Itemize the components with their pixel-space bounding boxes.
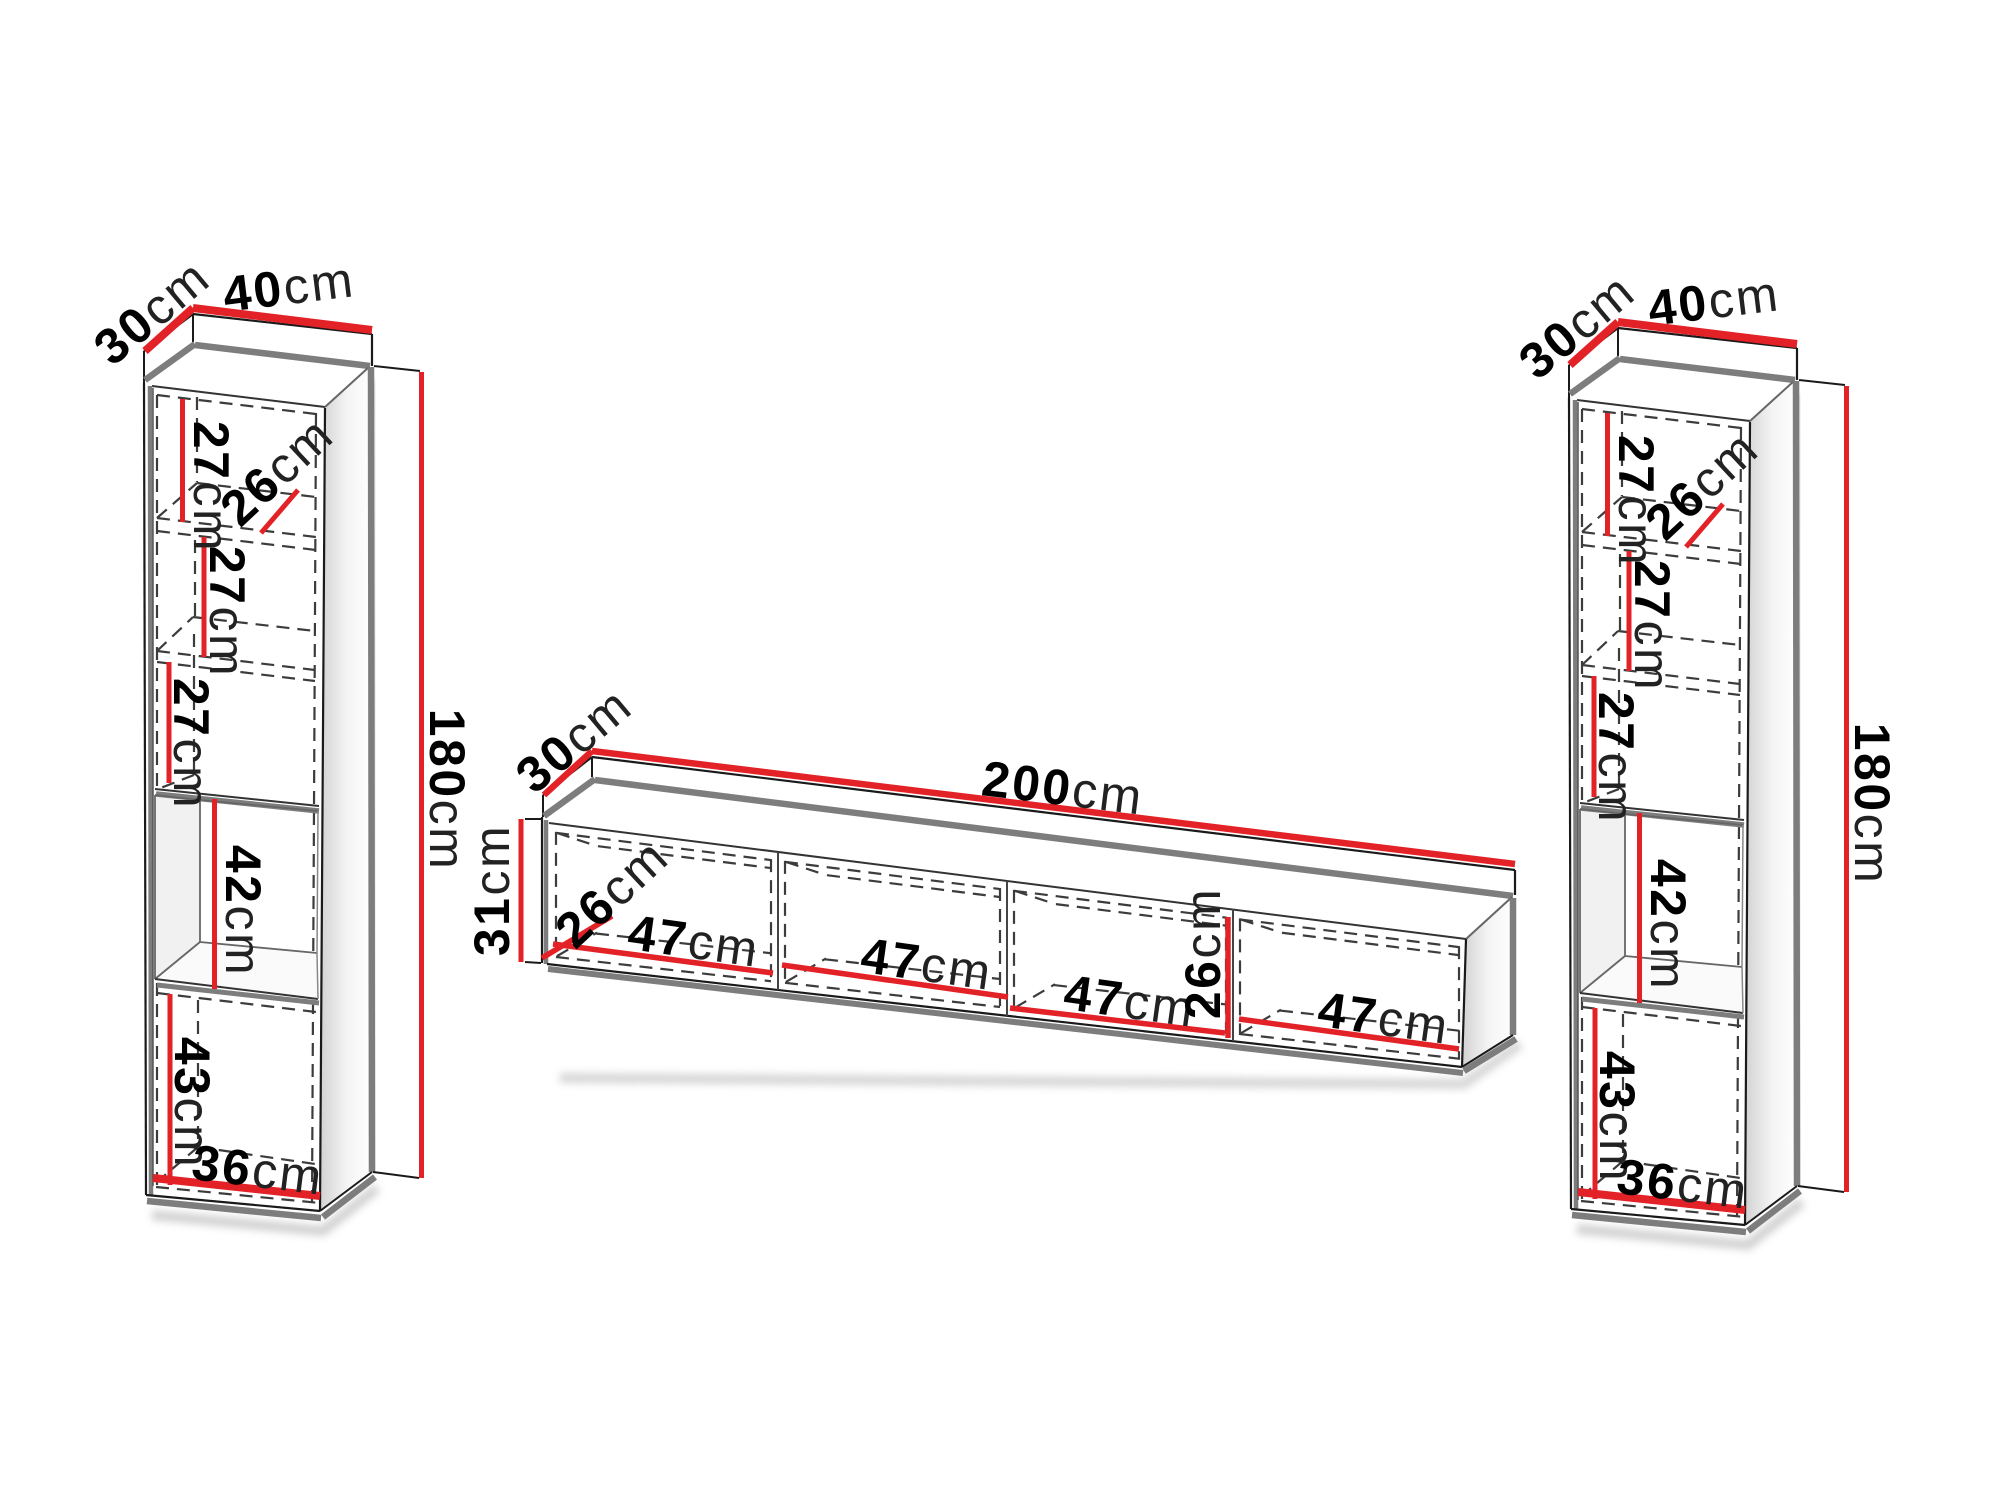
svg-text:26cm: 26cm [1175,887,1231,1019]
svg-text:180cm: 180cm [1844,723,1900,886]
svg-text:27cm: 27cm [163,678,219,810]
svg-text:42cm: 42cm [1640,859,1696,991]
svg-text:31cm: 31cm [464,824,520,956]
svg-text:27cm: 27cm [1588,692,1644,824]
svg-text:42cm: 42cm [215,845,271,977]
svg-text:27cm: 27cm [1624,560,1680,692]
svg-text:27cm: 27cm [199,546,255,678]
